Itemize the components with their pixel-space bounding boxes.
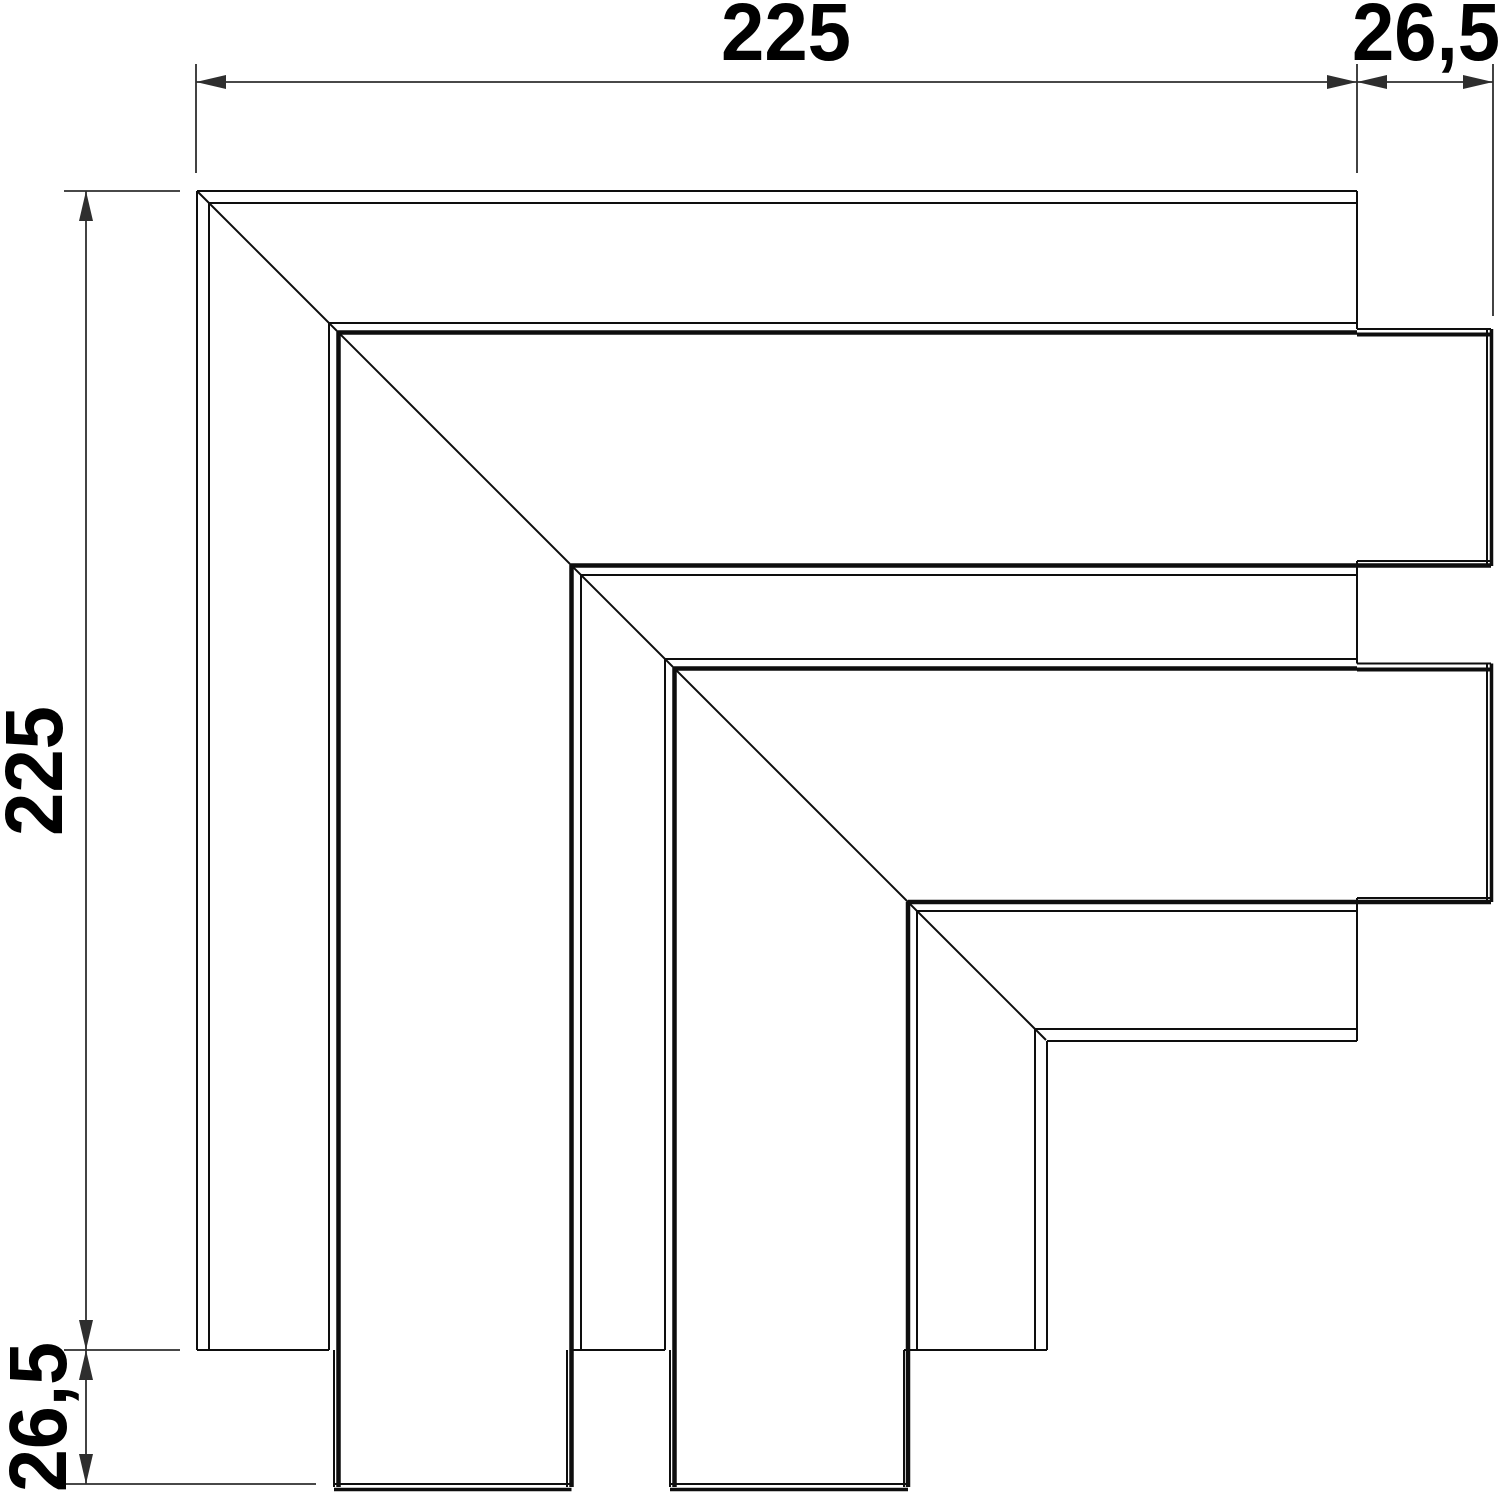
technical-drawing-page: 22526,522526,5: [0, 0, 1500, 1495]
drawing-background: [0, 0, 1500, 1495]
dimension-text: 225: [721, 0, 851, 78]
dimension-text: 225: [0, 706, 80, 836]
dimension-text: 26,5: [1352, 0, 1500, 78]
corner-piece-drawing: 22526,522526,5: [0, 0, 1500, 1495]
dimension-text: 26,5: [0, 1342, 84, 1492]
